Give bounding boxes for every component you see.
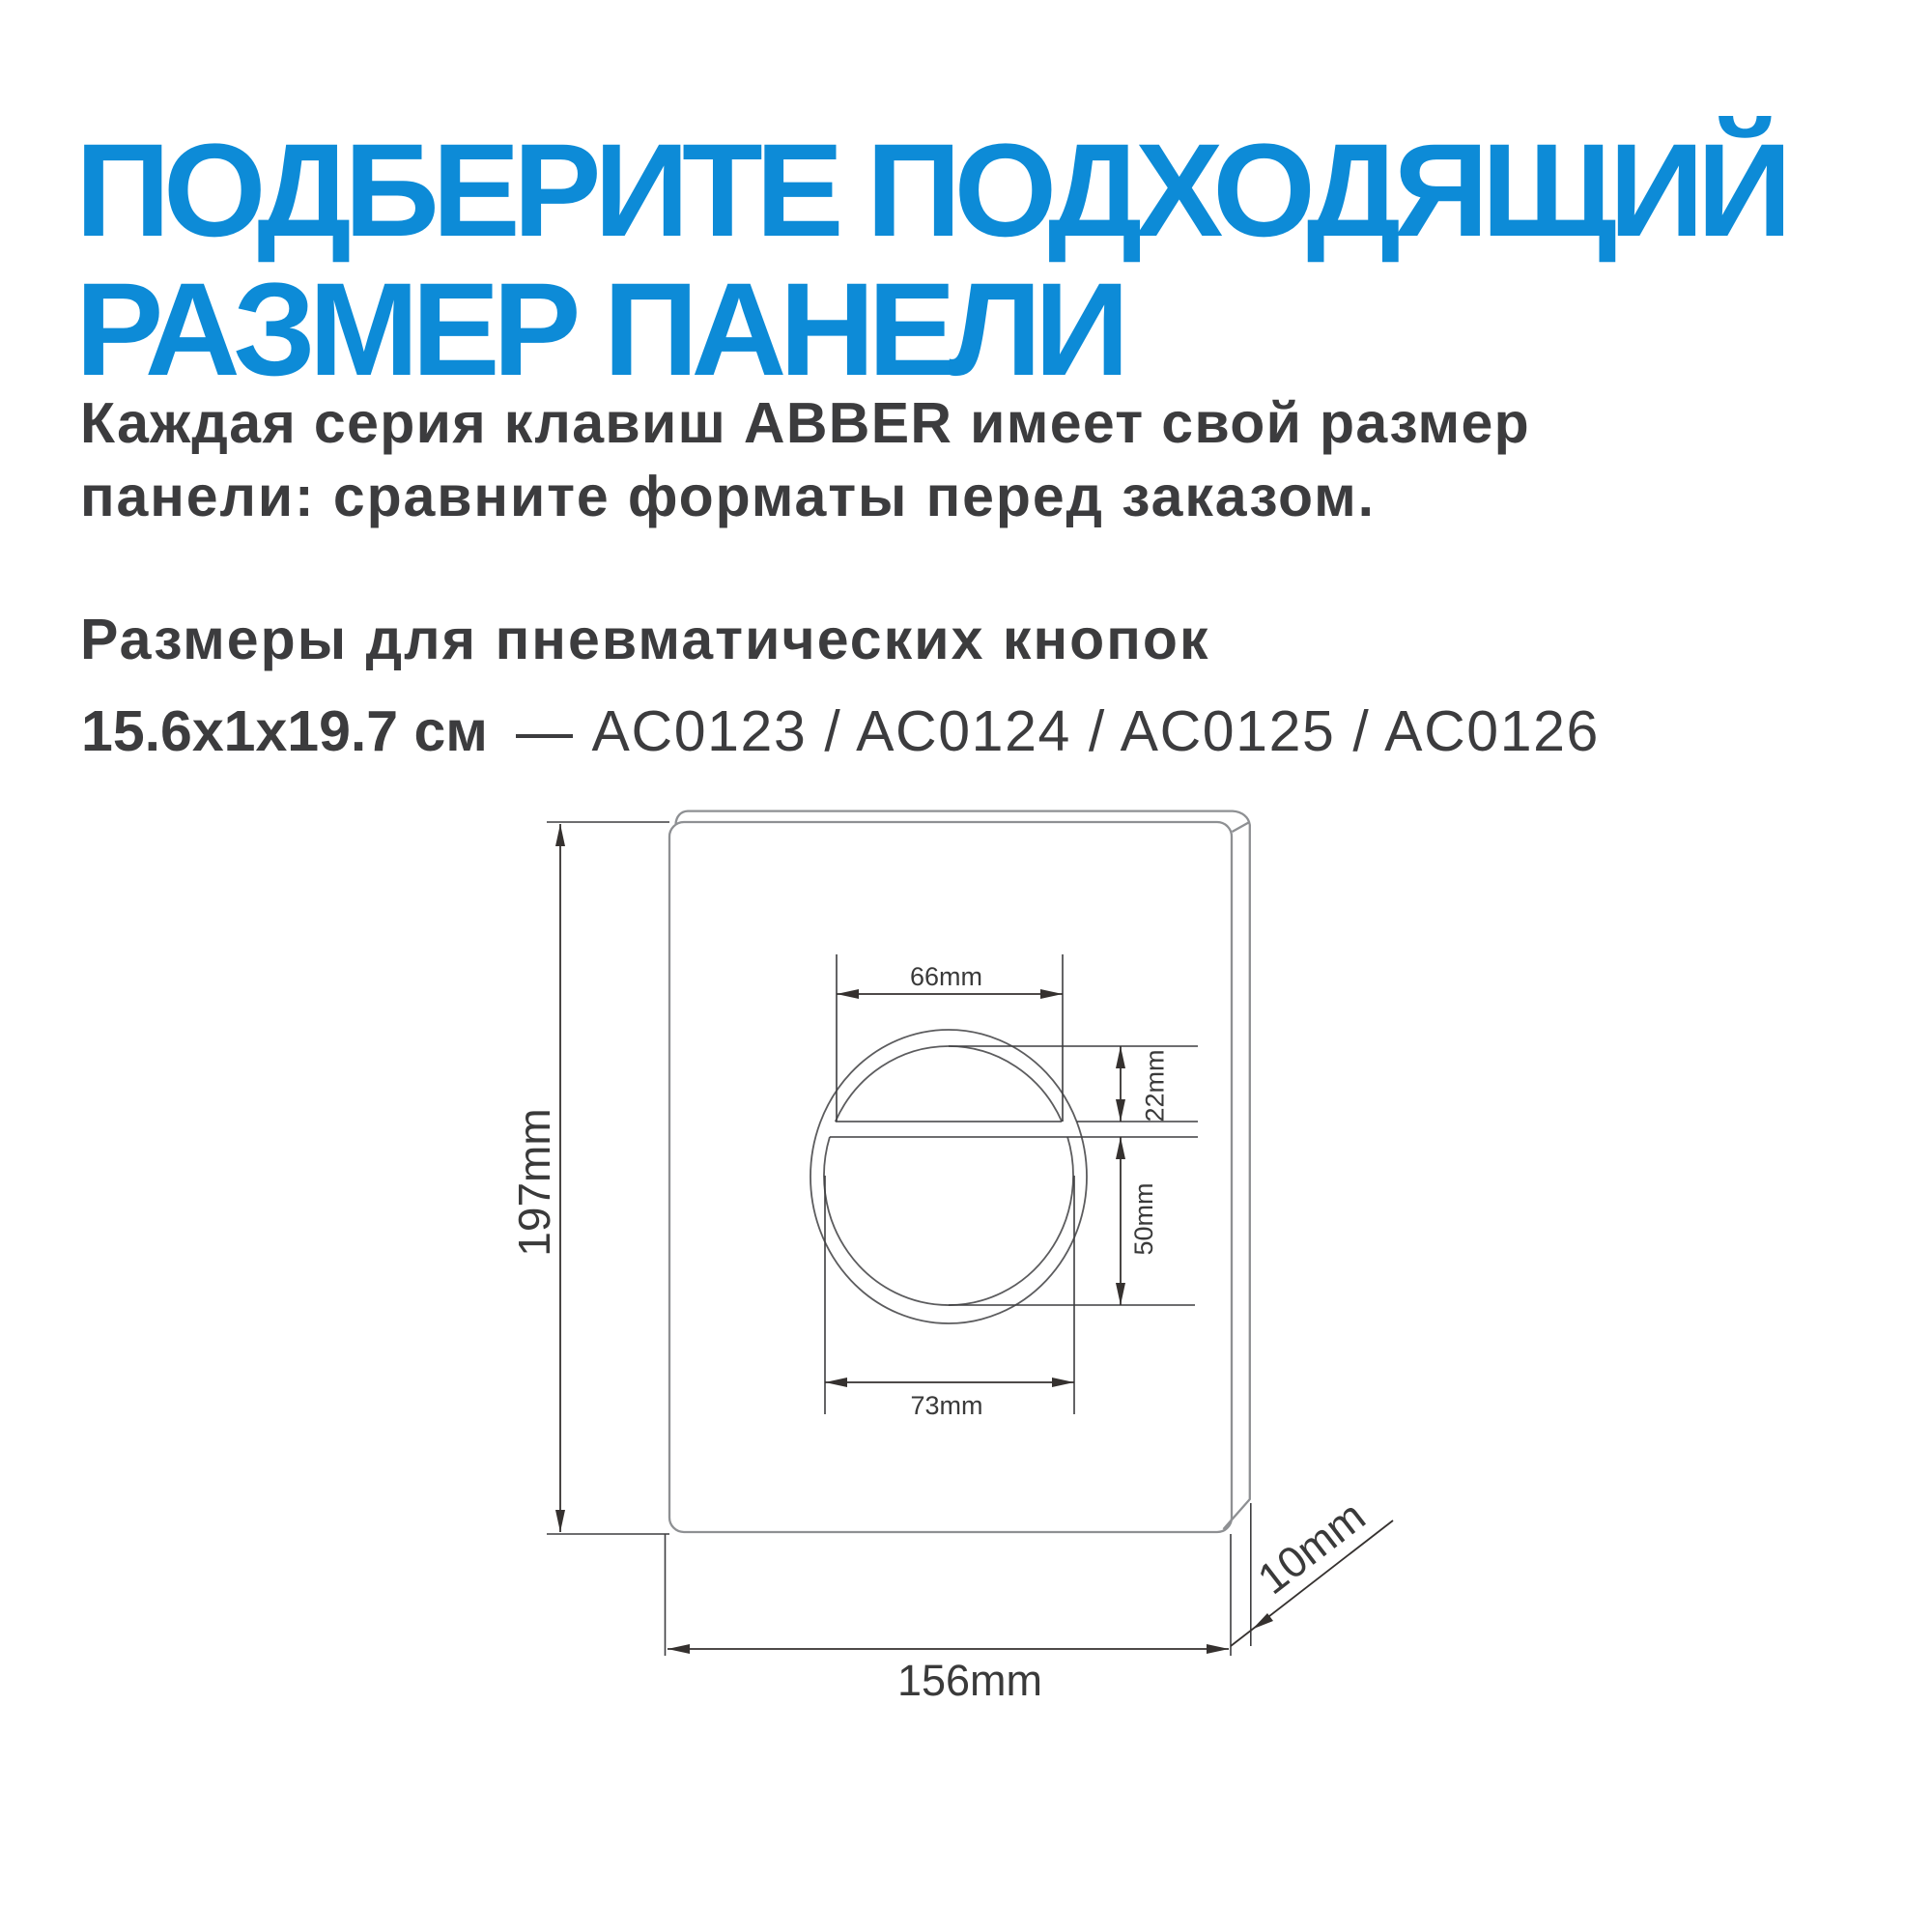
svg-text:50mm: 50mm <box>1129 1182 1158 1255</box>
svg-text:156mm: 156mm <box>897 1656 1042 1705</box>
svg-text:73mm: 73mm <box>910 1391 982 1420</box>
svg-text:197mm: 197mm <box>509 1108 559 1256</box>
svg-text:22mm: 22mm <box>1141 1049 1170 1122</box>
svg-text:10mm: 10mm <box>1248 1491 1374 1604</box>
svg-text:66mm: 66mm <box>910 962 982 991</box>
